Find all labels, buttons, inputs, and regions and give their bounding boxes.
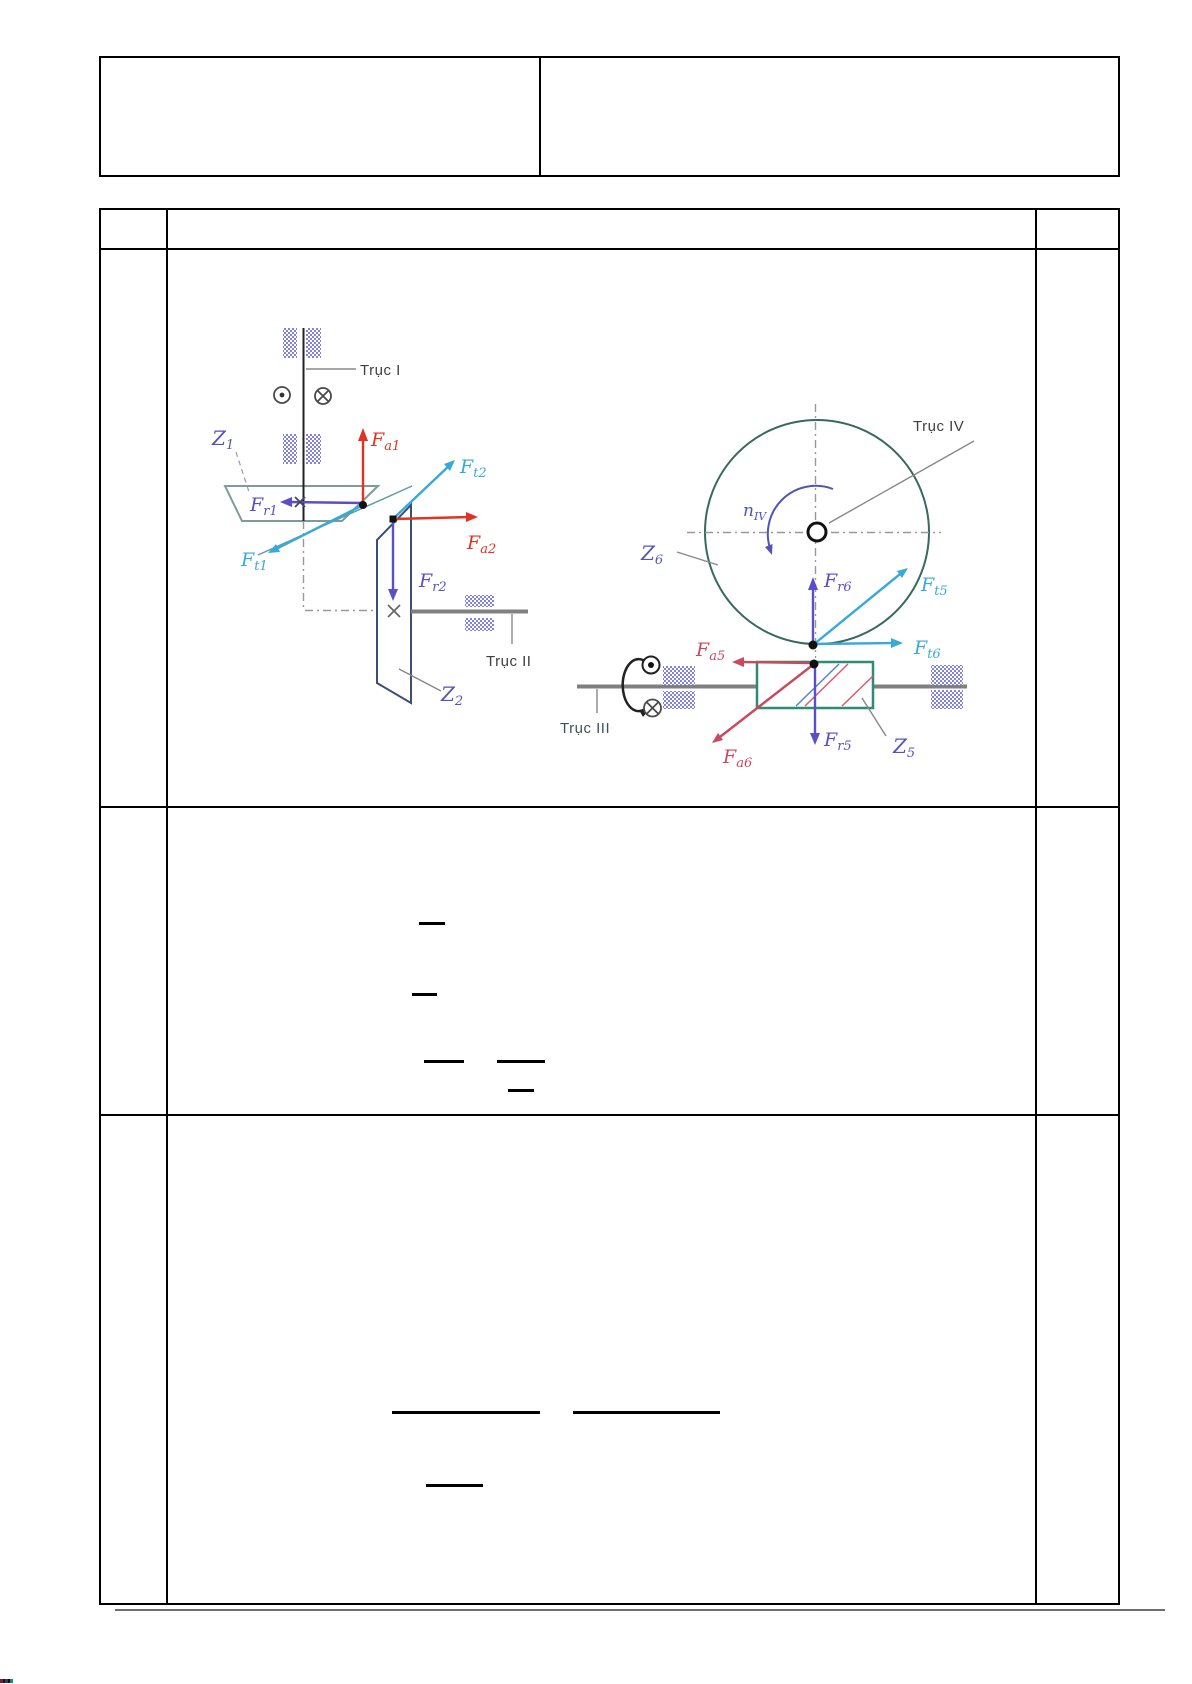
- fa5-arrow: [740, 662, 814, 663]
- page-bottom-rule: [115, 1609, 1165, 1611]
- fraction-bar: [426, 1484, 483, 1487]
- fraction-bar: [573, 1411, 720, 1414]
- row-divider-1: [101, 806, 1118, 808]
- label-z6: Z6: [640, 541, 663, 568]
- document-page: Trục I Z1 Fa1 Fr1 Ft1 Ft2: [0, 0, 1192, 1684]
- mesh-point-2: [390, 516, 397, 523]
- label-truc-iv: Trục IV: [913, 418, 964, 435]
- label-fa2: Fa2: [466, 532, 496, 557]
- label-truc-ii: Trục II: [486, 653, 531, 670]
- worm-mesh-point-lower: [810, 660, 819, 669]
- label-z5: Z5: [892, 734, 915, 761]
- bearing-shaft1-top: [283, 328, 321, 358]
- label-ft5: Ft5: [920, 574, 948, 599]
- label-fa1: Fa1: [370, 429, 400, 454]
- fraction-bar: [412, 993, 437, 996]
- fraction-bar: [419, 922, 445, 925]
- fa2-arrowhead: [466, 512, 478, 522]
- header-table: [99, 56, 1120, 177]
- label-ft2: Ft2: [459, 456, 487, 481]
- label-fr2: Fr2: [418, 570, 447, 595]
- fraction-bar: [508, 1089, 534, 1092]
- bearing-shaft1-bottom: [283, 434, 321, 464]
- main-table-right-divider: [1035, 210, 1037, 1603]
- row-divider-2: [101, 1114, 1118, 1116]
- worm-mesh-point-upper: [809, 641, 818, 650]
- header-table-right-cell: [543, 58, 1118, 175]
- rotation-cross-icon: [315, 388, 331, 404]
- corner-artifact-strip: [0, 1679, 13, 1683]
- rotation-cross-icon-shaft3: [644, 700, 661, 717]
- label-truc-i: Trục I: [360, 362, 401, 379]
- shaft4-hub: [808, 523, 826, 541]
- label-z1: Z1: [211, 426, 234, 453]
- label-fa6: Fa6: [722, 746, 752, 771]
- fa1-arrowhead: [358, 428, 368, 441]
- fraction-bar: [424, 1060, 464, 1063]
- label-ft6: Ft6: [913, 637, 941, 662]
- fa5-arrowhead: [732, 657, 744, 667]
- gear-force-diagram: Trục I Z1 Fa1 Fr1 Ft1 Ft2: [166, 248, 1035, 806]
- ft6-arrow: [813, 643, 895, 644]
- rotation-dot-icon-shaft3: [643, 657, 660, 674]
- label-fa5: Fa5: [695, 639, 725, 664]
- ft6-arrowhead: [891, 638, 903, 648]
- header-table-left-cell: [101, 58, 539, 175]
- fr5-arrowhead: [810, 733, 820, 745]
- fraction-bar: [497, 1060, 545, 1063]
- label-fr5: Fr5: [823, 729, 852, 754]
- rotation-dot-icon: [274, 387, 290, 403]
- fraction-bar: [392, 1411, 540, 1414]
- mesh-point-1: [359, 501, 367, 509]
- label-truc-iii: Trục III: [560, 720, 610, 737]
- header-table-divider: [539, 58, 541, 175]
- label-z2: Z2: [440, 682, 463, 709]
